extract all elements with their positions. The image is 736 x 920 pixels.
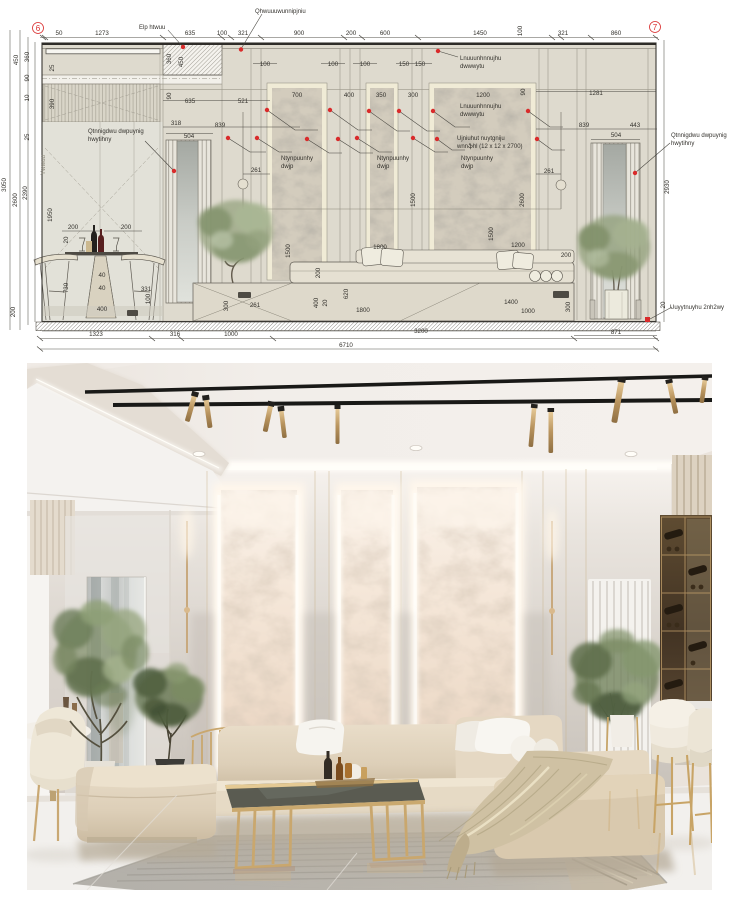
svg-text:200: 200 [561,252,572,259]
svg-text:wnnֆhl (12 x 12 x 2700): wnnֆhl (12 x 12 x 2700) [456,143,523,150]
svg-text:Qhwuuuwunnipjniu: Qhwuuuwunnipjniu [255,9,306,15]
svg-text:Elp htwuu: Elp htwuu [139,25,165,31]
svg-text:100: 100 [217,30,228,37]
svg-text:1500: 1500 [285,244,292,258]
svg-text:620: 620 [343,288,350,299]
svg-text:200: 200 [315,267,322,278]
svg-text:20: 20 [63,236,70,243]
svg-text:504: 504 [184,133,195,140]
svg-text:2390: 2390 [22,186,29,200]
svg-text:350: 350 [376,92,387,99]
svg-text:839: 839 [215,122,226,129]
svg-text:6: 6 [36,24,41,33]
svg-text:900: 900 [294,30,305,37]
svg-text:400: 400 [344,92,355,99]
svg-text:1000: 1000 [224,331,238,338]
svg-text:Lnuuunhnnujhu: Lnuuunhnnujhu [460,104,501,110]
svg-text:7: 7 [653,23,658,32]
svg-text:Ntynpuunhy: Ntynpuunhy [461,156,493,162]
svg-text:1500: 1500 [488,227,495,241]
svg-text:Lnuuunhnnujhu: Lnuuunhnnujhu [460,56,501,62]
svg-text:25: 25 [49,64,56,71]
svg-text:100: 100 [517,25,524,36]
svg-text:2930: 2930 [664,180,671,194]
svg-text:300: 300 [408,92,419,99]
svg-text:200: 200 [10,306,17,317]
svg-text:90: 90 [24,74,31,81]
svg-text:443: 443 [630,122,641,129]
svg-text:Ntynpuunhy: Ntynpuunhy [377,156,409,162]
svg-text:600: 600 [380,30,391,37]
svg-text:1000: 1000 [521,308,535,315]
svg-text:400: 400 [313,297,320,308]
svg-text:300: 300 [565,301,572,312]
svg-text:839: 839 [579,122,590,129]
svg-text:hwytihny: hwytihny [671,141,694,147]
svg-text:2600: 2600 [519,193,526,207]
svg-text:200: 200 [68,224,79,231]
svg-text:10: 10 [24,94,31,101]
svg-text:331: 331 [141,286,152,293]
svg-text:1950: 1950 [47,208,54,222]
svg-text:321: 321 [238,30,249,37]
svg-text:50: 50 [56,30,63,37]
svg-text:20: 20 [660,301,667,308]
svg-text:hwytihny: hwytihny [88,137,111,143]
svg-text:700: 700 [292,92,303,99]
svg-text:2600: 2600 [12,193,19,207]
svg-text:1400: 1400 [504,299,518,306]
svg-text:150: 150 [415,61,426,68]
svg-text:100: 100 [360,61,371,68]
svg-text:6710: 6710 [339,342,353,349]
svg-text:360: 360 [24,51,31,62]
svg-text:100: 100 [328,61,339,68]
svg-text:100: 100 [260,61,271,68]
svg-text:20: 20 [322,299,329,306]
svg-text:635: 635 [185,30,196,37]
svg-text:261: 261 [251,167,262,174]
svg-text:1800: 1800 [373,244,387,251]
svg-text:90: 90 [520,88,527,95]
svg-text:400: 400 [97,306,108,313]
svg-text:450: 450 [178,56,185,67]
svg-text:Ntynpuunhy: Ntynpuunhy [281,156,313,162]
svg-text:1273: 1273 [95,30,109,37]
svg-text:1500: 1500 [410,193,417,207]
svg-text:1450: 1450 [473,30,487,37]
svg-text:40: 40 [99,285,106,292]
svg-text:40: 40 [99,272,106,279]
svg-text:1323: 1323 [89,331,103,338]
svg-text:90: 90 [166,92,173,99]
svg-text:318: 318 [171,120,182,127]
svg-text:Ywwuu: Ywwuu [40,154,47,175]
svg-text:300: 300 [223,300,230,311]
svg-text:200: 200 [346,30,357,37]
svg-text:dwjp: dwjp [377,164,390,170]
svg-text:100: 100 [145,293,152,304]
svg-text:dwjp: dwjp [461,164,474,170]
svg-text:Qtnnigdwu dwpuynig: Qtnnigdwu dwpuynig [88,129,144,135]
svg-text:1281: 1281 [589,90,603,97]
svg-text:25: 25 [24,133,31,140]
svg-text:860: 860 [611,30,622,37]
svg-text:730: 730 [63,282,70,293]
svg-text:504: 504 [611,132,622,139]
svg-text:871: 871 [611,329,622,336]
svg-text:316: 316 [170,331,181,338]
svg-text:450: 450 [13,54,20,65]
svg-text:dwwwytu: dwwwytu [460,64,484,70]
svg-text:1800: 1800 [356,307,370,314]
svg-text:Ujniuhut nuytgniju: Ujniuhut nuytgniju [457,136,505,142]
svg-text:1200: 1200 [511,242,525,249]
svg-text:150: 150 [399,61,410,68]
svg-text:200: 200 [121,224,132,231]
svg-text:3200: 3200 [414,328,428,335]
svg-text:390: 390 [49,98,56,109]
svg-text:dwwwytu: dwwwytu [460,112,484,118]
svg-text:1200: 1200 [476,92,490,99]
svg-text:261: 261 [250,302,261,309]
svg-text:Qtnnigdwu dwpuynig: Qtnnigdwu dwpuynig [671,133,727,139]
svg-text:521: 521 [238,98,249,105]
svg-text:3050: 3050 [1,178,8,192]
svg-text:360: 360 [166,53,173,64]
svg-text:Uuyytnuyhu 2nh2wy: Uuyytnuyhu 2nh2wy [670,305,724,311]
svg-text:dwjp: dwjp [281,164,294,170]
svg-text:321: 321 [558,30,569,37]
svg-text:635: 635 [185,98,196,105]
